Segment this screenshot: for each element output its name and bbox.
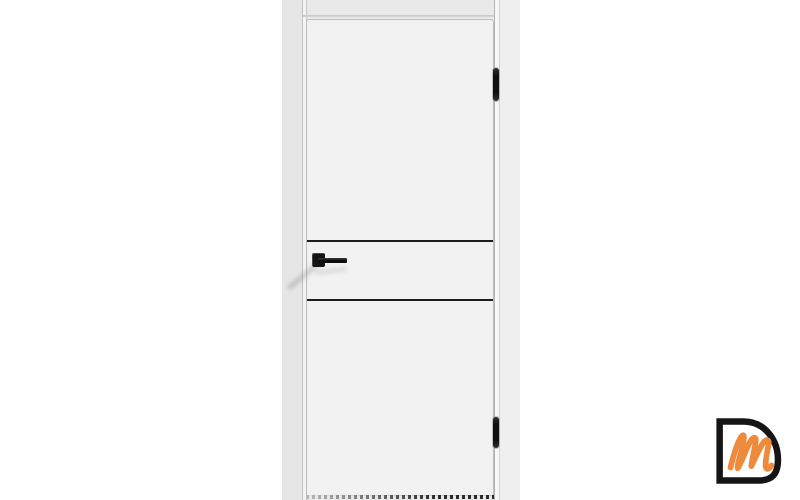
brand-logo: DM brand logo watermark bbox=[711, 416, 783, 486]
door-frame-left bbox=[282, 0, 302, 500]
door-bottom-seal bbox=[306, 495, 494, 499]
door-accent-line-top bbox=[307, 240, 493, 242]
door-accent-line-bottom bbox=[307, 299, 493, 301]
product-photo-canvas: DM brand logo watermark bbox=[0, 0, 800, 500]
door-frame-top-edge bbox=[303, 15, 499, 17]
door-frame-right bbox=[500, 0, 520, 500]
door-handle-lever-icon bbox=[318, 258, 347, 263]
handle-shadow bbox=[315, 267, 347, 275]
brand-logo-svg: DM brand logo watermark bbox=[711, 416, 783, 486]
hinge-top-icon bbox=[493, 68, 499, 101]
hinge-bottom-icon bbox=[493, 417, 499, 448]
door-leaf bbox=[306, 19, 494, 496]
logo-letter-m bbox=[730, 435, 771, 469]
door-photo bbox=[282, 0, 520, 500]
